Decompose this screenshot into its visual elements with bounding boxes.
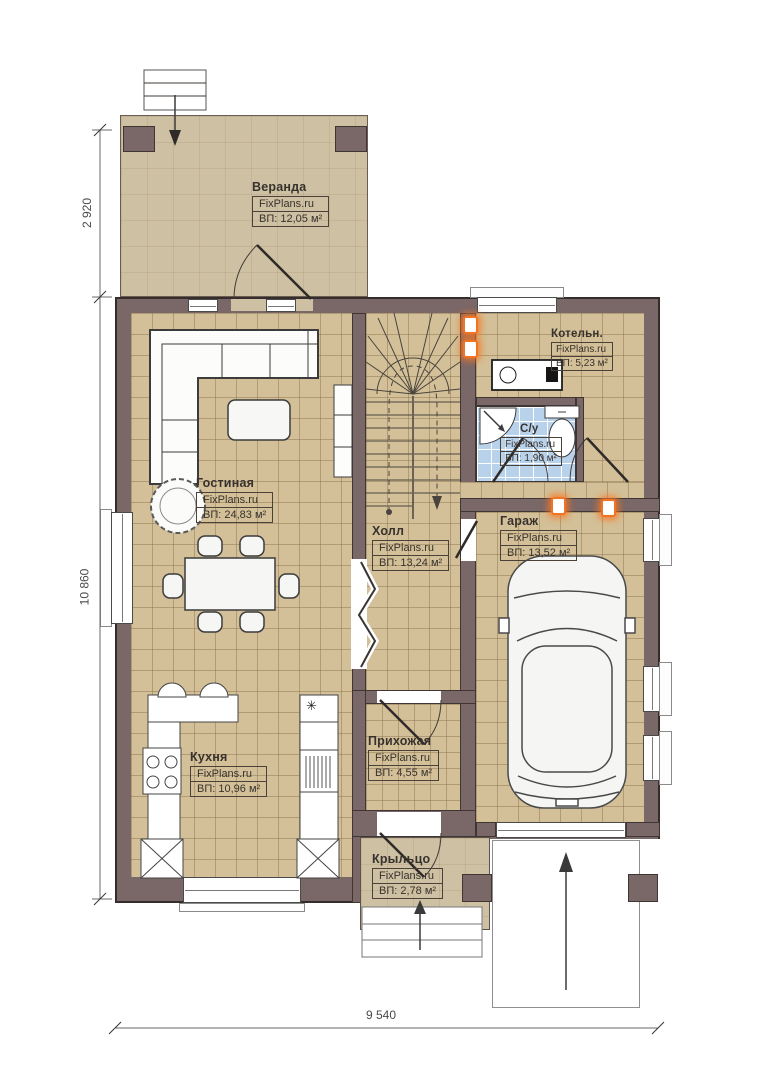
room-area: ВП: 5,23 м²: [552, 357, 612, 370]
room-name: С/у: [520, 423, 562, 435]
garage-window-3: [643, 735, 660, 781]
room-label-kuhnya: Кухня FixPlans.ru ВП: 10,96 м²: [190, 750, 267, 797]
brand-watermark: FixPlans.ru: [373, 541, 448, 556]
garage-window-2: [643, 666, 660, 712]
garage-window-2-sill: [659, 662, 672, 716]
vent-marker-1: [463, 316, 478, 334]
room-area: ВП: 12,05 м²: [253, 212, 328, 226]
living-window-top-2: [266, 299, 296, 312]
partition-main-vertical: [460, 313, 476, 837]
brand-watermark: FixPlans.ru: [501, 531, 576, 546]
stairs-hall-floor: [366, 313, 460, 692]
brand-watermark: FixPlans.ru: [191, 767, 266, 782]
garage-window-1: [643, 518, 660, 562]
folding-door-opening: [351, 559, 367, 669]
boiler-window: [477, 297, 557, 313]
veranda-pillar-right: [335, 126, 367, 152]
brand-watermark: FixPlans.ru: [552, 343, 612, 357]
porch-door-opening: [377, 812, 441, 836]
room-name: Кухня: [190, 750, 267, 764]
room-label-kotelnaya: Котельн. FixPlans.ru ВП: 5,23 м²: [551, 328, 613, 371]
room-area: ВП: 24,83 м²: [197, 508, 272, 522]
room-label-kryltso: Крыльцо FixPlans.ru ВП: 2,78 м²: [372, 852, 443, 899]
garage-entry-opening: [461, 519, 476, 561]
garage-window-1-sill: [659, 514, 672, 566]
garage-window-3-sill: [659, 731, 672, 785]
floor-plan: ✳: [0, 0, 763, 1080]
room-name: Котельн.: [551, 328, 613, 340]
veranda-pillar-left: [123, 126, 155, 152]
kitchen-window-bottom: [183, 877, 301, 903]
living-window-left: [111, 512, 133, 624]
corridor-strip: [460, 482, 644, 498]
garage-door: [496, 822, 626, 838]
room-area: ВП: 13,52 м²: [501, 546, 576, 560]
room-area: ВП: 10,96 м²: [191, 782, 266, 796]
room-name: Прихожая: [368, 734, 439, 748]
room-name: Крыльцо: [372, 852, 443, 866]
driveway: [492, 840, 640, 1008]
room-area: ВП: 1,90 м²: [501, 452, 561, 465]
brand-watermark: FixPlans.ru: [253, 197, 328, 212]
room-label-prihozhaya: Прихожая FixPlans.ru ВП: 4,55 м²: [368, 734, 439, 781]
room-name: Гостиная: [196, 476, 273, 490]
room-area: ВП: 13,24 м²: [373, 556, 448, 570]
living-window-top-1: [188, 299, 218, 312]
room-label-holl: Холл FixPlans.ru ВП: 13,24 м²: [372, 524, 449, 571]
room-name: Гараж: [500, 514, 577, 528]
prihozhaya-door-opening: [377, 691, 441, 703]
driveway-pillar-right: [628, 874, 658, 902]
kitchen-window-sill: [179, 903, 305, 912]
veranda-floor: [120, 115, 368, 297]
brand-watermark: FixPlans.ru: [373, 869, 442, 884]
bathroom-right-wall: [576, 397, 584, 482]
vent-marker-4: [601, 499, 616, 517]
dimension-vertical-top: 2 920: [80, 198, 94, 228]
room-name: Холл: [372, 524, 449, 538]
garage-door-stub-right: [626, 822, 660, 837]
dimension-vertical-main: 10 860: [77, 569, 91, 606]
room-area: ВП: 2,78 м²: [373, 884, 442, 898]
brand-watermark: FixPlans.ru: [197, 493, 272, 508]
bathroom-top-wall: [476, 397, 576, 406]
room-area: ВП: 4,55 м²: [369, 766, 438, 780]
garage-door-stub-left: [476, 822, 496, 837]
room-label-garazh: Гараж FixPlans.ru ВП: 13,52 м²: [500, 514, 577, 561]
driveway-pillar-left: [462, 874, 492, 902]
kitchen-sink-star-icon: ✳: [306, 698, 317, 714]
brand-watermark: FixPlans.ru: [501, 438, 561, 452]
dimension-horizontal-bottom: 9 540: [366, 1008, 396, 1022]
vent-marker-2: [463, 340, 478, 358]
brand-watermark: FixPlans.ru: [369, 751, 438, 766]
vent-marker-3: [551, 497, 566, 515]
room-label-sanuzel: С/у FixPlans.ru ВП: 1,90 м²: [500, 423, 562, 466]
room-label-veranda: Веранда FixPlans.ru ВП: 12,05 м²: [252, 180, 329, 227]
room-label-gostinaya: Гостиная FixPlans.ru ВП: 24,83 м²: [196, 476, 273, 523]
room-name: Веранда: [252, 180, 329, 194]
